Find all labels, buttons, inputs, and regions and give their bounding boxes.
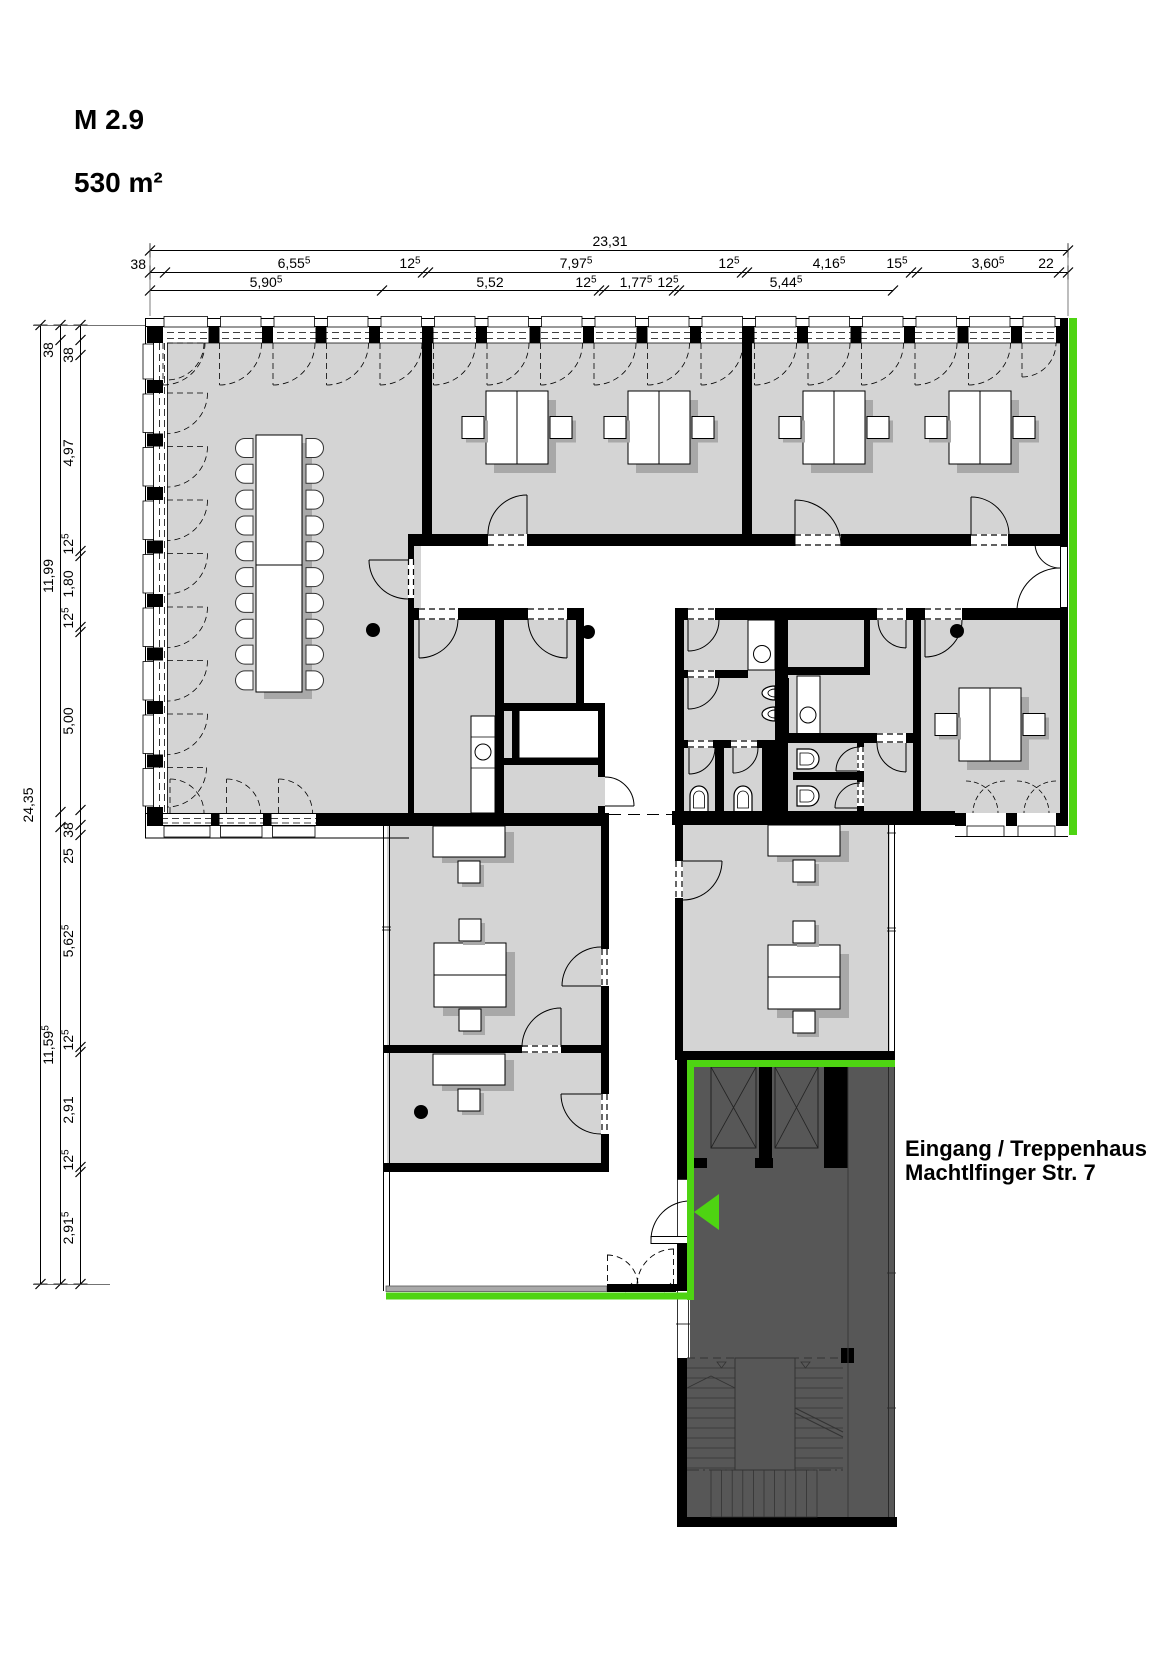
svg-text:5,00: 5,00 [60,707,76,734]
svg-text:11,99: 11,99 [40,559,56,593]
svg-text:530 m²: 530 m² [74,167,163,198]
svg-text:5,52: 5,52 [476,274,503,290]
svg-text:23,31: 23,31 [592,233,627,249]
svg-text:24,35: 24,35 [20,787,36,822]
svg-text:M 2.9: M 2.9 [74,104,144,135]
svg-text:25: 25 [60,848,76,864]
svg-text:22: 22 [1038,255,1054,271]
svg-text:38: 38 [60,822,76,838]
svg-text:38: 38 [60,347,76,363]
svg-text:1,80: 1,80 [60,570,76,597]
svg-text:Eingang / Treppenhaus: Eingang / Treppenhaus [905,1136,1147,1161]
svg-text:38: 38 [40,342,56,358]
svg-text:Machtlfinger Str. 7: Machtlfinger Str. 7 [905,1160,1096,1185]
svg-text:2,91: 2,91 [60,1096,76,1123]
svg-text:38: 38 [130,256,146,272]
svg-text:4,97: 4,97 [60,439,76,466]
